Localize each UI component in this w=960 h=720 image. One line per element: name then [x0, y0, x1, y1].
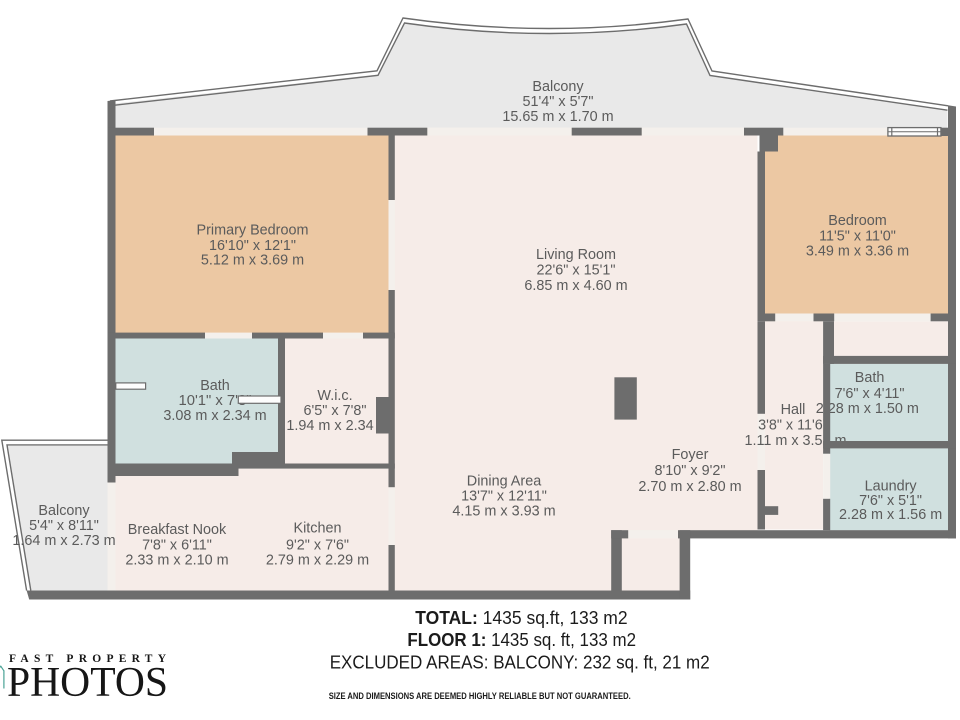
svg-text:Balcony: Balcony	[532, 79, 584, 95]
svg-text:Foyer: Foyer	[672, 447, 709, 463]
svg-text:3'8" x 11'6": 3'8" x 11'6"	[758, 418, 828, 434]
svg-text:2.79 m x 2.29 m: 2.79 m x 2.29 m	[266, 553, 369, 569]
svg-text:9'2" x 7'6": 9'2" x 7'6"	[286, 538, 349, 554]
svg-text:2.28 m x 1.50 m: 2.28 m x 1.50 m	[816, 401, 919, 417]
svg-text:1.94 m x 2.34 m: 1.94 m x 2.34 m	[286, 418, 389, 434]
svg-text:Bath: Bath	[855, 370, 885, 386]
svg-text:2.70 m x 2.80 m: 2.70 m x 2.80 m	[638, 479, 741, 495]
svg-text:5'4" x 8'11": 5'4" x 8'11"	[29, 518, 99, 534]
svg-text:3.49 m x 3.36 m: 3.49 m x 3.36 m	[806, 244, 909, 260]
svg-text:FLOOR 1: 1435 sq. ft, 133 m2: FLOOR 1: 1435 sq. ft, 133 m2	[407, 629, 636, 650]
svg-text:7'8" x 6'11": 7'8" x 6'11"	[142, 538, 212, 554]
svg-text:51'4" x 5'7": 51'4" x 5'7"	[523, 94, 594, 110]
svg-text:Dining Area: Dining Area	[467, 474, 541, 490]
svg-text:2.33 m x 2.10 m: 2.33 m x 2.10 m	[125, 553, 228, 569]
svg-text:22'6" x 15'1": 22'6" x 15'1"	[537, 263, 616, 279]
svg-text:4.15 m x 3.93 m: 4.15 m x 3.93 m	[452, 504, 555, 520]
svg-text:EXCLUDED AREAS: BALCONY: 232 s: EXCLUDED AREAS: BALCONY: 232 sq. ft, 21 …	[330, 651, 710, 672]
svg-text:Hall: Hall	[781, 402, 806, 418]
svg-text:5.12 m x 3.69 m: 5.12 m x 3.69 m	[201, 253, 304, 269]
svg-text:Bedroom: Bedroom	[828, 213, 886, 229]
svg-text:11'5" x 11'0": 11'5" x 11'0"	[819, 229, 896, 245]
svg-text:Bath: Bath	[200, 378, 230, 394]
svg-text:15.65 m x 1.70 m: 15.65 m x 1.70 m	[502, 109, 613, 125]
svg-text:Balcony: Balcony	[38, 503, 90, 519]
svg-text:Kitchen: Kitchen	[294, 521, 342, 537]
svg-text:3.08 m x 2.34 m: 3.08 m x 2.34 m	[163, 408, 266, 424]
svg-text:8'10" x 9'2": 8'10" x 9'2"	[655, 463, 726, 479]
svg-text:7'6" x 4'11": 7'6" x 4'11"	[835, 386, 905, 402]
svg-text:Primary Bedroom: Primary Bedroom	[197, 223, 309, 239]
svg-text:13'7" x 12'11": 13'7" x 12'11"	[461, 489, 547, 505]
svg-text:SIZE AND DIMENSIONS ARE DEEMED: SIZE AND DIMENSIONS ARE DEEMED HIGHLY RE…	[329, 691, 631, 701]
svg-text:1.64 m x 2.73 m: 1.64 m x 2.73 m	[12, 533, 115, 549]
svg-text:2.28 m x 1.56 m: 2.28 m x 1.56 m	[839, 507, 942, 523]
svg-text:TOTAL: 1435 sq.ft, 133 m2: TOTAL: 1435 sq.ft, 133 m2	[415, 607, 627, 628]
svg-text:6.85 m x 4.60 m: 6.85 m x 4.60 m	[524, 278, 627, 294]
svg-text:6'5" x 7'8": 6'5" x 7'8"	[304, 403, 367, 419]
svg-text:PHOTOS: PHOTOS	[7, 659, 168, 706]
svg-text:Breakfast Nook: Breakfast Nook	[128, 522, 227, 538]
svg-text:W.i.c.: W.i.c.	[317, 388, 352, 404]
svg-text:Living Room: Living Room	[536, 247, 616, 263]
